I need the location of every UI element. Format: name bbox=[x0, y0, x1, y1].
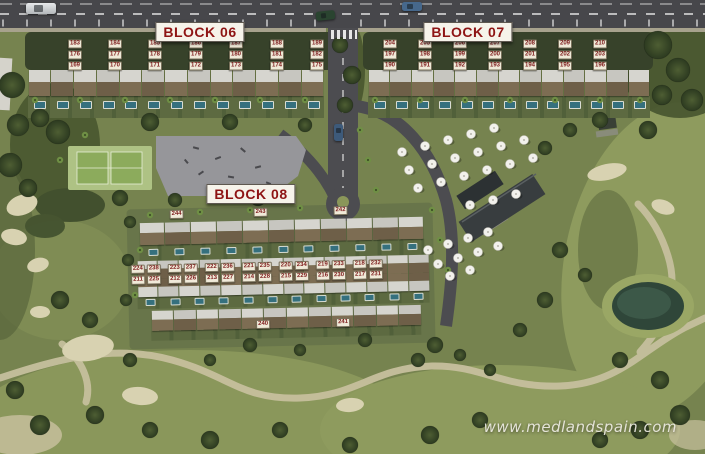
tree-icon bbox=[337, 97, 353, 113]
unit-label: 181 bbox=[270, 51, 284, 60]
parasol-icon bbox=[532, 157, 534, 159]
unit-label: 174 bbox=[270, 62, 284, 71]
parasol-icon bbox=[467, 237, 469, 239]
palm-icon bbox=[439, 239, 441, 241]
unit-label: 195 bbox=[558, 62, 572, 71]
tree-icon bbox=[86, 406, 104, 424]
unit-label: 175 bbox=[310, 62, 324, 71]
unit-label: 196 bbox=[593, 62, 607, 71]
tree-icon bbox=[124, 216, 136, 228]
unit-label: 173 bbox=[229, 62, 243, 71]
unit-label: 191 bbox=[418, 62, 432, 71]
parasol-icon bbox=[427, 249, 429, 251]
unit-label: 193 bbox=[488, 62, 502, 71]
parasol-icon bbox=[449, 275, 451, 277]
unit-label: 208 bbox=[523, 40, 537, 49]
tree-icon bbox=[454, 349, 466, 361]
tree-icon bbox=[222, 114, 238, 130]
site-plan: 2442432422242382232372222362212352202342… bbox=[0, 0, 705, 454]
unit-label: 192 bbox=[453, 62, 467, 71]
tree-icon bbox=[120, 294, 132, 306]
parasol-icon bbox=[447, 139, 449, 141]
palm-icon bbox=[59, 159, 61, 161]
palm-icon bbox=[359, 129, 361, 131]
tree-icon bbox=[563, 123, 577, 137]
tree-icon bbox=[343, 66, 361, 84]
palm-icon bbox=[374, 99, 376, 101]
parasol-icon bbox=[492, 199, 494, 201]
tree-icon bbox=[652, 85, 672, 105]
tree-icon bbox=[513, 323, 527, 337]
parasol-icon bbox=[457, 257, 459, 259]
palm-icon bbox=[199, 211, 201, 213]
unit-label: 182 bbox=[310, 51, 324, 60]
palm-icon bbox=[431, 209, 433, 211]
parasol-icon bbox=[497, 245, 499, 247]
palm-icon bbox=[447, 269, 449, 271]
palm-icon bbox=[375, 189, 377, 191]
palm-icon bbox=[79, 99, 81, 101]
unit-label: 170 bbox=[108, 62, 122, 71]
parasol-icon bbox=[463, 175, 465, 177]
unit-label: 209 bbox=[558, 40, 572, 49]
block-06-label: BLOCK 06 bbox=[155, 22, 244, 42]
unit-label: 203 bbox=[593, 51, 607, 60]
tree-icon bbox=[30, 415, 50, 435]
parasol-icon bbox=[447, 243, 449, 245]
unit-label: 188 bbox=[270, 40, 284, 49]
tree-icon bbox=[298, 118, 312, 132]
tree-icon bbox=[342, 437, 358, 453]
unit-label: 194 bbox=[523, 62, 537, 71]
tree-icon bbox=[644, 31, 672, 59]
parasols bbox=[398, 124, 540, 282]
palm-icon bbox=[259, 99, 261, 101]
unit-label: 201 bbox=[523, 51, 537, 60]
parasol-icon bbox=[454, 157, 456, 159]
parasol-icon bbox=[417, 187, 419, 189]
tree-icon bbox=[332, 37, 348, 53]
parasol-icon bbox=[469, 269, 471, 271]
unit-label: 199 bbox=[453, 51, 467, 60]
unit-label: 197 bbox=[383, 51, 397, 60]
tree-icon bbox=[484, 364, 496, 376]
unit-label: 179 bbox=[189, 51, 203, 60]
unit-label: 176 bbox=[68, 51, 82, 60]
parasol-icon bbox=[437, 263, 439, 265]
tree-icon bbox=[681, 89, 703, 111]
parasol-icon bbox=[477, 151, 479, 153]
tree-icon bbox=[46, 120, 70, 144]
parasol-icon bbox=[431, 163, 433, 165]
crosswalk bbox=[331, 30, 357, 39]
palm-icon bbox=[34, 99, 36, 101]
parasol-icon bbox=[424, 145, 426, 147]
unit-label: 202 bbox=[558, 51, 572, 60]
tree-icon bbox=[201, 431, 219, 449]
unit-label: 189 bbox=[310, 40, 324, 49]
palm-icon bbox=[304, 99, 306, 101]
parasol-icon bbox=[515, 193, 517, 195]
tree-icon bbox=[82, 312, 98, 328]
trees bbox=[0, 31, 703, 453]
block-08-label: BLOCK 08 bbox=[206, 184, 295, 204]
unit-label: 178 bbox=[148, 51, 162, 60]
bus bbox=[26, 3, 56, 14]
tree-icon bbox=[651, 371, 669, 389]
unit-label: 171 bbox=[148, 62, 162, 71]
palm-icon bbox=[84, 134, 86, 136]
parasol-icon bbox=[408, 169, 410, 171]
unit-label: 172 bbox=[189, 62, 203, 71]
tree-icon bbox=[411, 353, 425, 367]
parasol-icon bbox=[493, 127, 495, 129]
tree-icon bbox=[31, 109, 49, 127]
palm-icon bbox=[124, 99, 126, 101]
parasol-icon bbox=[440, 181, 442, 183]
unit-label: 183 bbox=[68, 40, 82, 49]
tree-icon bbox=[7, 114, 29, 136]
tree-icon bbox=[19, 179, 37, 197]
tree-icon bbox=[294, 344, 306, 356]
tree-icon bbox=[358, 333, 372, 347]
parasol-icon bbox=[469, 204, 471, 206]
tree-icon bbox=[243, 338, 257, 352]
tree-icon bbox=[6, 381, 24, 399]
palm-icon bbox=[509, 99, 511, 101]
palm-icon bbox=[464, 99, 466, 101]
tree-icon bbox=[612, 352, 628, 368]
unit-label: 198 bbox=[418, 51, 432, 60]
parasol-icon bbox=[486, 169, 488, 171]
palm-icon bbox=[554, 99, 556, 101]
tree-icon bbox=[51, 291, 69, 309]
tree-icon bbox=[204, 354, 216, 366]
tree-icon bbox=[123, 353, 137, 367]
parasol-icon bbox=[509, 163, 511, 165]
unit-label: 190 bbox=[383, 62, 397, 71]
tree-icon bbox=[0, 72, 25, 98]
tree-icon bbox=[537, 292, 553, 308]
unit-label: 177 bbox=[108, 51, 122, 60]
unit-label: 210 bbox=[593, 40, 607, 49]
tree-icon bbox=[168, 193, 182, 207]
tree-icon bbox=[142, 422, 158, 438]
palm-icon bbox=[299, 207, 301, 209]
tree-icon bbox=[639, 121, 657, 139]
parasol-icon bbox=[487, 231, 489, 233]
parasol-icon bbox=[401, 151, 403, 153]
palm-icon bbox=[169, 99, 171, 101]
palm-icon bbox=[139, 249, 141, 251]
tree-icon bbox=[141, 113, 159, 131]
palm-icon bbox=[214, 99, 216, 101]
tree-icon bbox=[112, 190, 128, 206]
palm-icon bbox=[367, 159, 369, 161]
unit-label: 184 bbox=[108, 40, 122, 49]
parasol-icon bbox=[470, 133, 472, 135]
car bbox=[334, 124, 343, 141]
parasol-icon bbox=[477, 251, 479, 253]
tree-icon bbox=[552, 242, 568, 258]
palm-icon bbox=[639, 99, 641, 101]
palm-icon bbox=[134, 294, 136, 296]
block-07-label: BLOCK 07 bbox=[423, 22, 512, 42]
tree-icon bbox=[666, 58, 690, 82]
tree-icon bbox=[122, 254, 134, 266]
palm-icon bbox=[599, 99, 601, 101]
unit-label: 169 bbox=[68, 62, 82, 71]
watermark: www.medlandspain.com bbox=[484, 418, 677, 436]
tree-icon bbox=[538, 141, 552, 155]
unit-label: 180 bbox=[229, 51, 243, 60]
unit-label: 200 bbox=[488, 51, 502, 60]
tree-icon bbox=[578, 268, 592, 282]
tree-icon bbox=[592, 112, 608, 128]
tree-icon bbox=[427, 337, 443, 353]
car bbox=[402, 2, 422, 11]
palm-icon bbox=[249, 209, 251, 211]
parasol-icon bbox=[523, 139, 525, 141]
tree-icon bbox=[0, 153, 22, 177]
parasol-icon bbox=[500, 145, 502, 147]
tree-icon bbox=[421, 426, 439, 444]
palm-icon bbox=[419, 99, 421, 101]
tree-icon bbox=[272, 422, 288, 438]
unit-label: 204 bbox=[383, 40, 397, 49]
palm-icon bbox=[149, 214, 151, 216]
